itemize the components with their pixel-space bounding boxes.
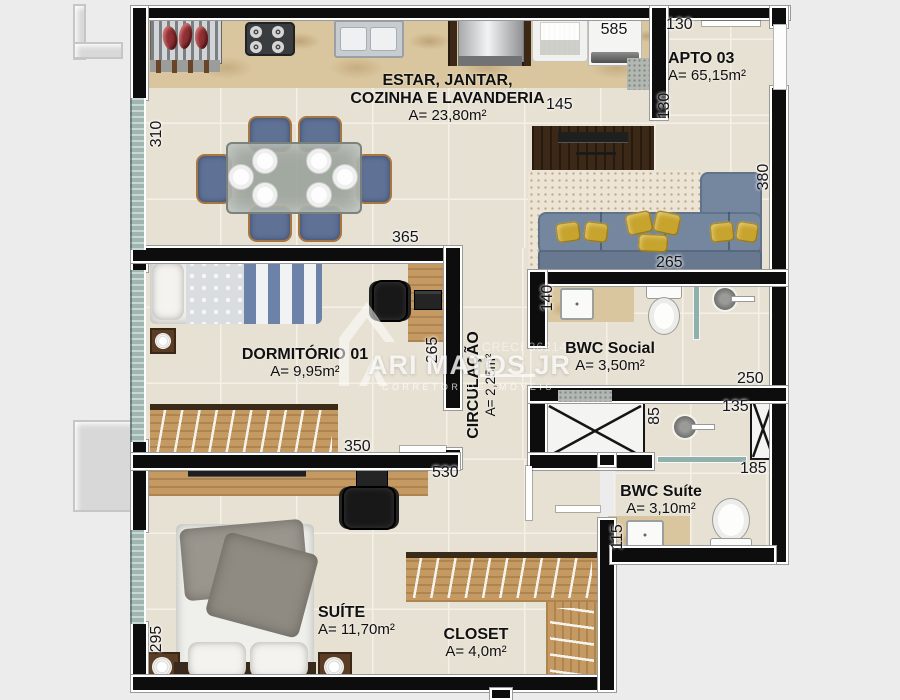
dim-dorm-width: 365	[392, 229, 419, 247]
entry-door-opening	[773, 24, 787, 90]
plate	[332, 164, 358, 190]
bwc-suite-area: A= 3,10m²	[600, 501, 722, 518]
neighbour-structure	[73, 420, 132, 512]
laptop	[414, 290, 442, 310]
closet-label: CLOSET A= 4,0m²	[420, 626, 532, 661]
plate	[306, 182, 332, 208]
wall-suite-top	[133, 455, 458, 468]
living-label: ESTAR, JANTAR, COZINHA E LAVANDERIA A= 2…	[335, 72, 560, 125]
burner	[250, 41, 262, 53]
bwc-suite-label: BWC Suíte A= 3,10m²	[600, 483, 722, 518]
closet-area: A= 4,0m²	[420, 644, 532, 661]
window-dorm	[130, 270, 146, 442]
shower-head	[674, 416, 696, 438]
shower-head	[714, 288, 736, 310]
bwc-social-name: BWC Social	[545, 340, 675, 358]
bwc-social-area: A= 3,50m²	[545, 358, 675, 375]
laundry-tank	[532, 16, 588, 62]
wall-closet-divider-stub	[600, 455, 614, 465]
tv	[558, 132, 628, 142]
shower-glass-panel	[658, 457, 746, 462]
bed-pillow	[188, 642, 246, 678]
shower-glass-panel	[694, 285, 699, 339]
sofa-pillow	[709, 221, 735, 243]
wall-left	[133, 8, 146, 98]
dorm-area: A= 9,95m²	[220, 364, 390, 381]
granite-strip	[558, 390, 612, 402]
dim-entry-depth: 130	[656, 86, 674, 126]
dim-shower-suite: 135	[722, 398, 749, 416]
dorm-wardrobe	[150, 404, 338, 456]
striped-blanket	[244, 258, 322, 324]
table-lamp	[155, 333, 171, 349]
cabinet-handle	[172, 60, 177, 73]
wall-bwc-suite-bottom	[612, 548, 774, 562]
cabinet-handle	[156, 60, 161, 73]
entry-door-leaf	[702, 21, 760, 26]
cabinet-handle	[204, 60, 209, 73]
dim-shaft: 85	[646, 396, 664, 436]
bwc-suite-name: BWC Suíte	[600, 483, 722, 501]
wall-sofa-bwc	[535, 272, 786, 284]
bwc-social-label: BWC Social A= 3,50m²	[545, 340, 675, 375]
living-area: A= 23,80m²	[335, 108, 560, 125]
masonry-column	[627, 58, 649, 90]
wall-dorm-top	[133, 248, 458, 261]
sofa-backrest	[538, 250, 762, 274]
dim-bwc-social-width: 250	[737, 370, 764, 388]
dim-living-window: 310	[148, 114, 166, 154]
dim-bwc-suite-counter: 115	[609, 517, 627, 557]
wardrobe-edge	[150, 404, 338, 410]
window-suite	[130, 530, 146, 624]
unit-area: A= 65,15m²	[668, 68, 772, 85]
toilet-bowl	[648, 297, 680, 335]
duvet	[186, 258, 244, 324]
suite-label: SUÍTE A= 11,70m²	[318, 604, 428, 639]
dorm-label: DORMITÓRIO 01 A= 9,95m²	[220, 346, 390, 381]
wall-stub	[492, 690, 510, 698]
dim-bwc-suite-width: 185	[740, 460, 767, 478]
dim-suite-window: 295	[148, 619, 166, 659]
living-name-line1: ESTAR, JANTAR,	[335, 72, 560, 90]
table-lamp	[152, 657, 172, 677]
sofa-pillow	[555, 220, 582, 243]
wall-bottom	[133, 677, 613, 690]
dim-suite-width: 530	[432, 464, 459, 482]
dim-bwc-social-counter: 140	[539, 278, 557, 318]
burner	[272, 26, 284, 38]
wall-dorm-right	[446, 248, 460, 408]
table-lamp	[324, 657, 344, 677]
bed-pillow	[250, 642, 308, 678]
refrigerator-base	[458, 56, 522, 66]
suite-tv	[188, 467, 306, 476]
sofa-pillow	[583, 221, 609, 244]
suite-door-leaf	[526, 466, 532, 520]
plate	[306, 148, 332, 174]
dim-dorm-wardrobe: 350	[344, 438, 371, 456]
circulacao-name: CIRCULAÇÃO	[465, 300, 483, 470]
living-name-line2: COZINHA E LAVANDERIA	[335, 90, 560, 108]
neighbour-structure	[73, 42, 123, 59]
unit-name: APTO 03	[668, 50, 772, 68]
sofa-pillow	[735, 220, 760, 243]
suite-area: A= 11,70m²	[318, 622, 428, 639]
office-chair	[342, 486, 396, 530]
dorm-door-leaf	[400, 446, 446, 452]
wall-right	[772, 88, 786, 562]
unit-label: APTO 03 A= 65,15m²	[668, 50, 772, 85]
kitchen-double-sink	[334, 20, 404, 58]
cabinet-panel	[448, 16, 457, 66]
sofa-pillow	[638, 233, 669, 253]
rack-handle	[576, 152, 616, 155]
dim-living-right: 380	[755, 157, 773, 197]
wardrobe-edge	[406, 552, 598, 558]
dim-living-kitchen-width: 585	[590, 21, 638, 39]
window-living	[130, 98, 146, 250]
dim-dorm-depth: 265	[424, 330, 442, 370]
office-chair	[372, 280, 408, 322]
dim-tv-rack: 145	[546, 96, 573, 114]
closet-wardrobe-side	[546, 602, 598, 686]
suite-name: SUÍTE	[318, 604, 428, 622]
cabinet-handle	[188, 60, 193, 73]
dim-sofa-length: 265	[656, 254, 683, 272]
plate	[228, 164, 254, 190]
burner	[272, 41, 284, 53]
dim-entry-width: 130	[666, 16, 693, 34]
plate	[252, 182, 278, 208]
bed-pillow	[152, 262, 184, 320]
burner	[250, 26, 262, 38]
wall-shaft-bottom	[530, 455, 652, 468]
bwc-suite-sink	[626, 520, 664, 550]
utility-shaft-x	[545, 402, 645, 460]
circulacao-area: A= 2,25m²	[483, 300, 498, 470]
bwc-suite-door-leaf	[556, 506, 600, 512]
plate	[252, 148, 278, 174]
dorm-name: DORMITÓRIO 01	[220, 346, 390, 364]
closet-name: CLOSET	[420, 626, 532, 644]
closet-wardrobe-top	[406, 552, 598, 602]
bwc-social-sink	[560, 288, 594, 320]
floorplan-canvas: 585 130 130 APTO 03 A= 65,15m² ESTAR, JA…	[0, 0, 900, 700]
circulacao-label: CIRCULAÇÃO A= 2,25m²	[465, 300, 515, 470]
